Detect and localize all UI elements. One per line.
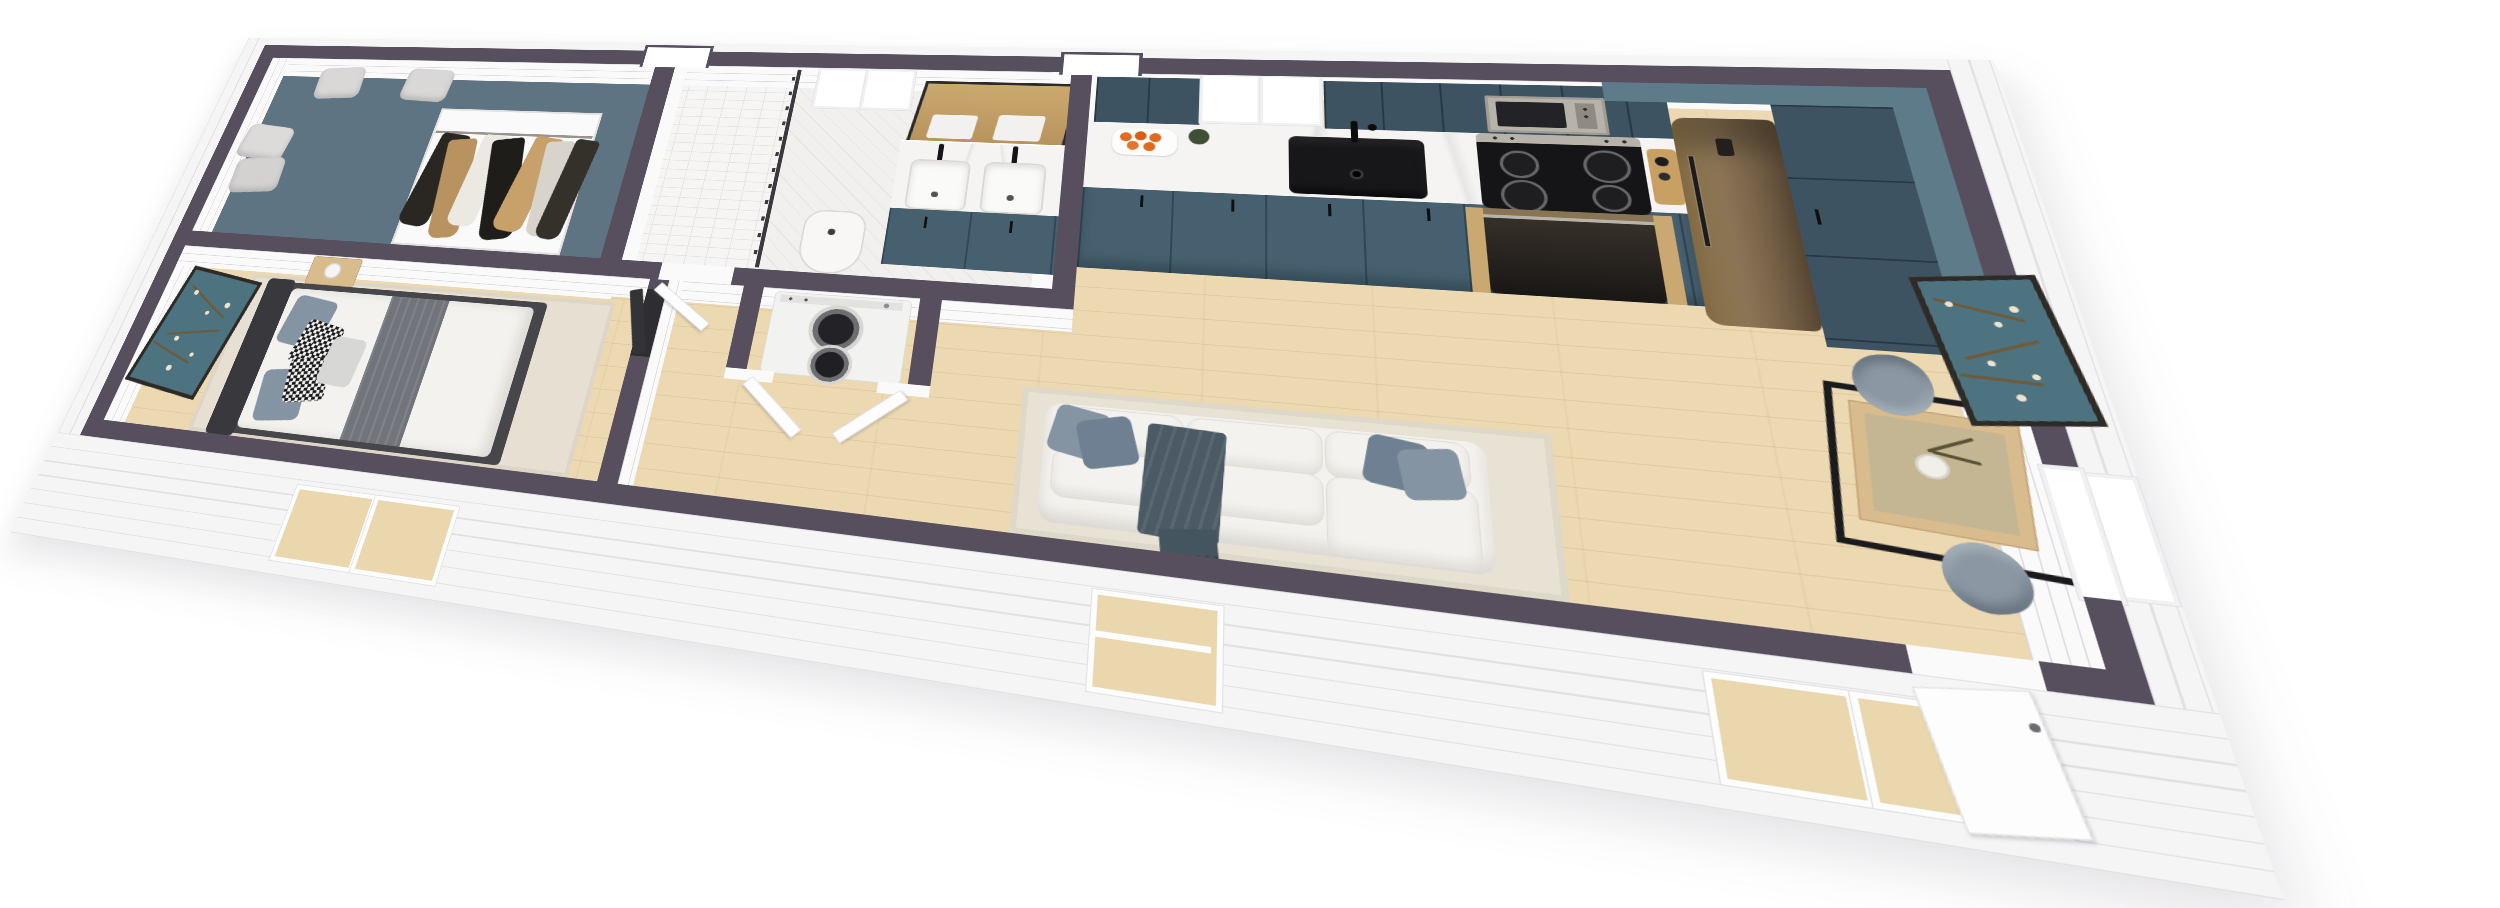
oven-front	[1483, 208, 1668, 304]
refrigerator-dispenser	[1715, 138, 1735, 156]
bathroom-window-right	[863, 71, 914, 108]
vanity-sink-right	[979, 162, 1047, 216]
throw-blanket	[1136, 422, 1227, 546]
kitchen-sink	[1289, 136, 1429, 199]
kitchen-upper-cabinets-left	[1094, 77, 1201, 125]
roof-niche-left	[639, 45, 714, 68]
cabinet-handle	[1140, 195, 1143, 207]
roof-niche-right	[1059, 52, 1143, 76]
bathroom-window-left	[814, 70, 865, 107]
sink-drain	[1349, 169, 1364, 180]
vanity-sink-left	[904, 159, 972, 212]
cabinet-handle	[1328, 204, 1331, 216]
kitchen-faucet-handle	[1368, 124, 1377, 131]
sofa-pillow-slate	[1075, 415, 1141, 470]
vanity-cabinet	[881, 208, 1059, 275]
building-plan	[80, 45, 2155, 705]
cabinet-handle	[1231, 199, 1234, 211]
kitchen-window-left	[1202, 76, 1257, 122]
microwave	[1484, 95, 1610, 135]
kitchen-window-right	[1263, 77, 1320, 124]
kitchen-faucet	[1350, 121, 1358, 143]
sofa-pillow-slate	[1396, 449, 1469, 501]
floorplan-render-stage	[0, 0, 2500, 908]
wall-bathroom-bottom-left	[617, 260, 662, 280]
